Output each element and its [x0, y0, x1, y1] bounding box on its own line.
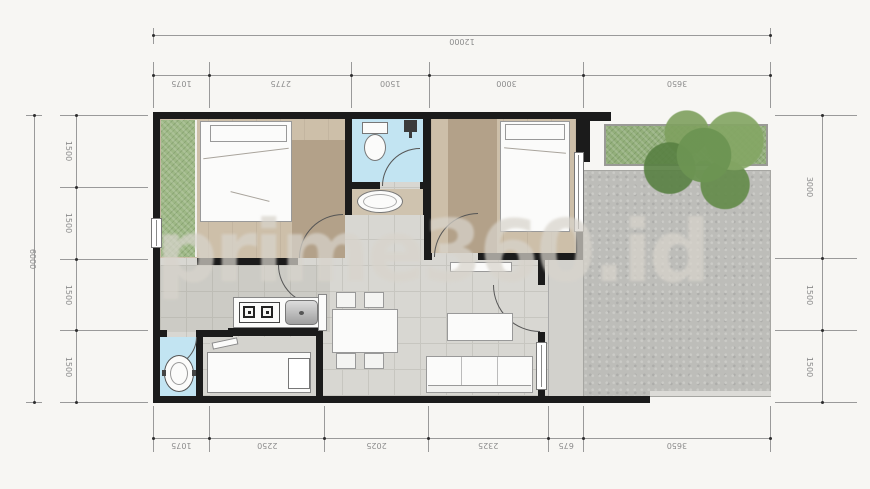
wall-bathroom2-north [153, 330, 167, 337]
watermark: prime360.id [156, 202, 708, 302]
burner-dot [248, 311, 251, 314]
toilet-tank-icon [362, 122, 388, 134]
yard-bottom-edge [650, 391, 771, 397]
wall-bathroom2-east [196, 330, 203, 396]
dining-chair [336, 353, 356, 369]
bed-1-headboard [210, 125, 287, 142]
toilet-2-hinge [162, 370, 166, 376]
wall-bottom [153, 396, 650, 403]
burner-dot [266, 311, 269, 314]
toilet-2-bowl [170, 362, 188, 385]
dining-table [332, 309, 398, 353]
shower-head-icon [404, 120, 417, 132]
stove-burner-1 [243, 306, 255, 318]
stove-burner-2 [261, 306, 273, 318]
kitchen-sink-drain [299, 311, 304, 315]
wall-living-east-c [538, 390, 545, 403]
sofa-backrest [428, 385, 531, 392]
wall-living-east-b [538, 332, 545, 342]
shower-stem [409, 132, 412, 138]
dining-chair [364, 353, 384, 369]
wall-top [153, 112, 590, 119]
sofa-cushion-divider [461, 357, 462, 385]
wall-kitchen-counter [228, 328, 323, 336]
toilet-bowl-icon [364, 134, 386, 161]
wall-service-east [316, 330, 323, 396]
window-living-line [541, 345, 542, 387]
floor-plan-canvas: 12000 10752775150030003650 1075225020252… [0, 0, 870, 489]
service-appliance [288, 358, 310, 389]
wall-bathroom1-west [345, 119, 352, 215]
coffee-table [447, 313, 513, 341]
sofa-cushion-divider [497, 357, 498, 385]
toilet-2-hinge [192, 370, 196, 376]
wall-service-north [203, 330, 233, 337]
wall-bathroom1-south-a [345, 182, 380, 189]
bed-2-headboard [505, 124, 565, 140]
